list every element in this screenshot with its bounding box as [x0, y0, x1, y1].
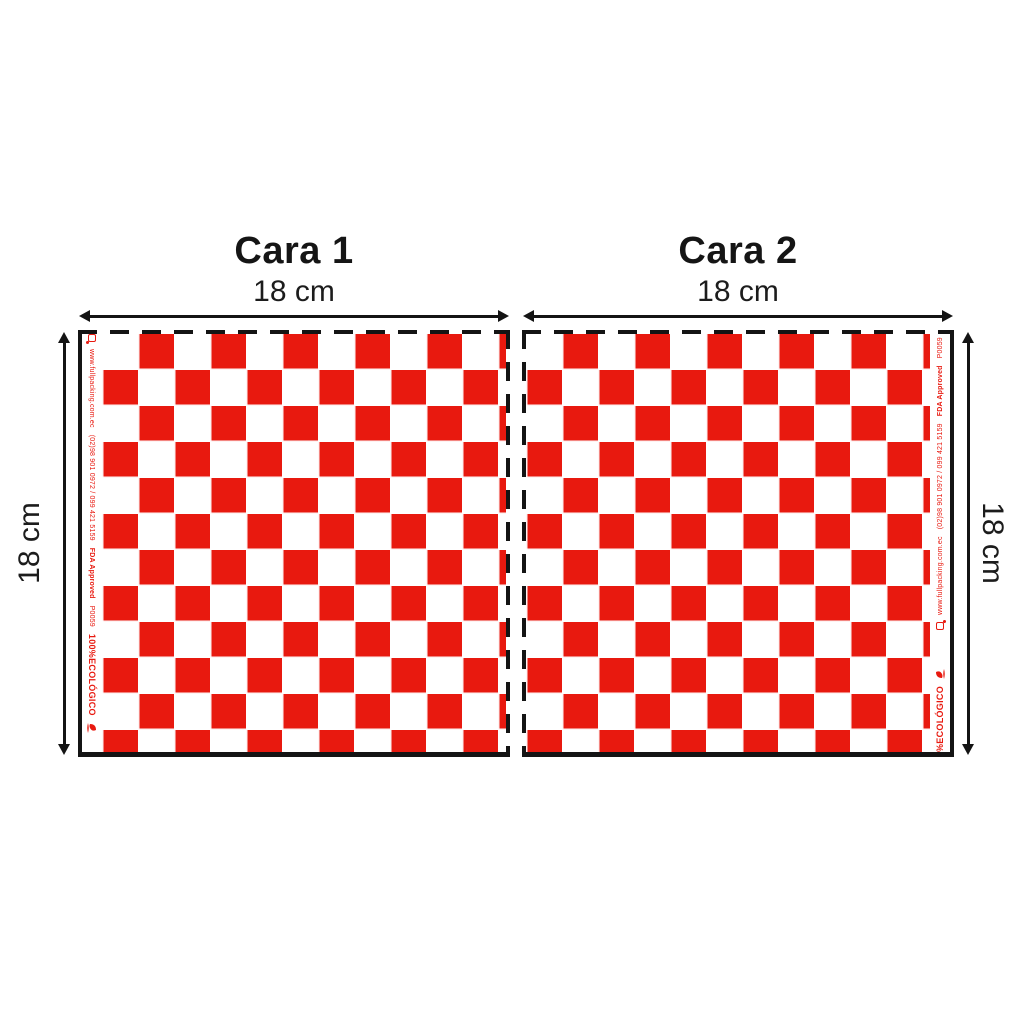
- solid-bottom-border: [522, 752, 954, 757]
- branding-strip: %ECOLÓGICO www.fullpacking.com.ec (02)98…: [930, 334, 950, 752]
- horizontal-dimension-arrow-right: [532, 315, 944, 318]
- branding-strip: www.fullpacking.com.ec (02)98 901 0972 /…: [82, 334, 102, 752]
- eco-text-partial: %ECOLÓGICO: [935, 686, 945, 752]
- solid-outer-border: [950, 330, 954, 757]
- product-dimension-diagram: Cara 1 Cara 2 18 cm 18 cm 18 cm 18 cm ww…: [0, 0, 1024, 1024]
- phone-text: (02)98 901 0972 / 099 421 5159: [89, 435, 96, 541]
- dashed-inner-border: [506, 330, 510, 757]
- leaf-icon: [935, 668, 946, 679]
- panel-title-cara-2: Cara 2: [522, 230, 954, 273]
- eco-text: 100%ECOLÓGICO: [87, 634, 97, 716]
- height-dimension-label-left: 18 cm: [15, 483, 45, 603]
- panel-cara-2: %ECOLÓGICO www.fullpacking.com.ec (02)98…: [522, 330, 954, 757]
- phone-text: (02)98 901 0972 / 099 421 5159: [937, 423, 944, 529]
- fda-approved-text: FDA Approved: [937, 365, 944, 416]
- width-dimension-label-right: 18 cm: [522, 275, 954, 309]
- leaf-icon: [87, 723, 98, 734]
- vertical-dimension-arrow-right: [967, 341, 970, 746]
- dashed-inner-border: [522, 330, 526, 757]
- height-dimension-label-right: 18 cm: [977, 483, 1007, 603]
- website-text: www.fullpacking.com.ec: [937, 536, 944, 615]
- product-code-text: P0059: [89, 606, 96, 627]
- panel-cara-1: www.fullpacking.com.ec (02)98 901 0972 /…: [78, 330, 510, 757]
- fullpacking-logo-icon: [936, 622, 944, 630]
- solid-bottom-border: [78, 752, 510, 757]
- width-dimension-label-left: 18 cm: [78, 275, 510, 309]
- branding-strip-content: www.fullpacking.com.ec (02)98 901 0972 /…: [82, 334, 102, 752]
- solid-outer-border: [78, 330, 82, 757]
- dashed-top-border: [78, 330, 510, 334]
- dashed-top-border: [522, 330, 954, 334]
- website-text: www.fullpacking.com.ec: [89, 349, 96, 428]
- fullpacking-logo-icon: [88, 334, 96, 342]
- checkerboard-pattern: [102, 334, 506, 752]
- product-code-text: P0059: [937, 337, 944, 358]
- checkerboard-pattern: [526, 334, 930, 752]
- panel-title-cara-1: Cara 1: [78, 230, 510, 273]
- branding-strip-content: %ECOLÓGICO www.fullpacking.com.ec (02)98…: [930, 334, 950, 752]
- vertical-dimension-arrow-left: [63, 341, 66, 746]
- horizontal-dimension-arrow-left: [88, 315, 500, 318]
- fda-approved-text: FDA Approved: [89, 548, 96, 599]
